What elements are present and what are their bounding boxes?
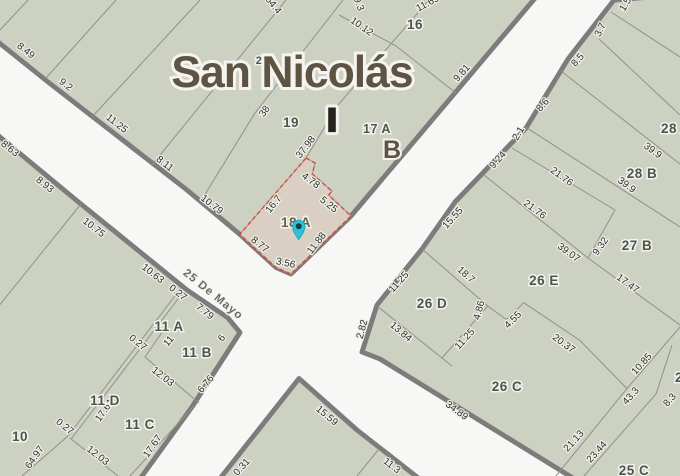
svg-text:26 D: 26 D [417,296,448,311]
svg-text:11 A: 11 A [154,319,183,334]
svg-text:San Nicolás: San Nicolás [171,48,412,97]
svg-text:25 A: 25 A [675,370,680,385]
svg-text:28 B: 28 B [627,166,658,181]
svg-text:25 C: 25 C [619,463,650,476]
svg-text:B: B [383,136,401,164]
svg-text:26 C: 26 C [492,379,523,394]
svg-text:17 A: 17 A [363,122,391,136]
svg-text:16: 16 [407,17,423,32]
svg-text:11 C: 11 C [125,417,155,432]
svg-text:11 B: 11 B [182,345,212,360]
svg-text:28 A: 28 A [661,121,680,136]
svg-text:11 D: 11 D [90,393,120,408]
svg-text:10: 10 [12,429,28,444]
svg-text:26 E: 26 E [529,273,559,288]
svg-text:19: 19 [283,115,299,130]
svg-text:27 B: 27 B [622,238,653,253]
